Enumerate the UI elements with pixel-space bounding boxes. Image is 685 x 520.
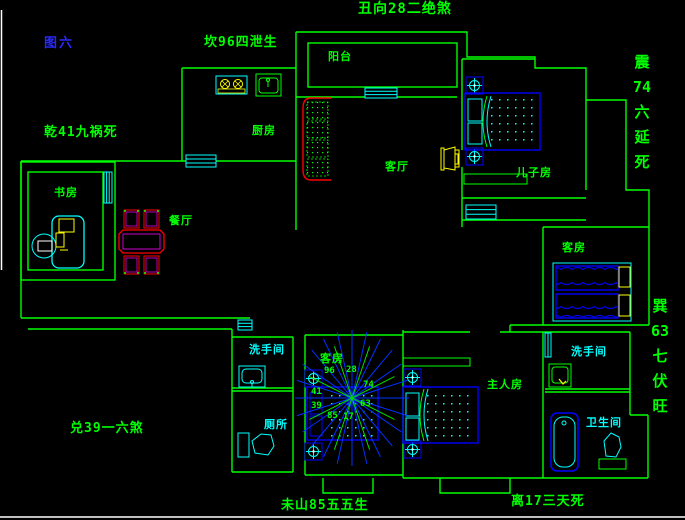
window-master-bath: [545, 333, 551, 357]
room-label-kitchen: 厨房: [252, 125, 276, 136]
kitchen-sink: [256, 74, 281, 96]
beds-guest-room: [553, 263, 631, 321]
annotation-left: 乾41九祸死: [44, 126, 118, 139]
room-label-master-room: 主人房: [487, 379, 523, 390]
compass-number-41: 41: [311, 388, 322, 397]
compass-number-63: 63: [360, 400, 371, 409]
room-label-stair-room: 客房: [320, 353, 344, 364]
room-label-bathroom: 卫生间: [586, 417, 622, 428]
annotation-char: 六: [634, 105, 649, 120]
annotation-char: 伏: [652, 374, 667, 389]
annotation-char: 延: [634, 130, 649, 145]
room-label-sons-room: 儿子房: [516, 167, 552, 178]
annotation-bottom-center: 未山85五五生: [281, 499, 369, 512]
figure-label: 图六: [44, 37, 74, 50]
annotation-char: 旺: [652, 399, 667, 414]
annotation-bottom-right: 离17三天死: [511, 495, 585, 508]
window-corridor: [238, 320, 252, 330]
annotation-right-upper: 震 74 六 延 死: [630, 55, 654, 170]
tv: [441, 147, 458, 170]
shelf-master-room: [403, 358, 470, 366]
dining-chairs: [124, 210, 159, 274]
room-label-toilet: 厕所: [264, 419, 288, 430]
compass-number-17: 17: [343, 413, 354, 422]
annotation-top-left: 坎96四泄生: [204, 36, 278, 49]
annotation-char: 死: [634, 155, 649, 170]
annotation-char: 63: [651, 324, 669, 339]
bathroom-toilet: [599, 433, 626, 469]
washroom1-sink: [239, 366, 265, 387]
room-label-study: 书房: [54, 187, 78, 198]
annotation-bottom-left: 兑39一六煞: [70, 422, 144, 435]
window-sons-room: [466, 205, 496, 219]
bathtub: [551, 413, 578, 471]
room-label-washroom-1: 洗手间: [249, 344, 285, 355]
room-label-guest-room: 客房: [562, 242, 586, 253]
compass-number-85: 85: [327, 412, 338, 421]
stair-compass: [295, 330, 409, 466]
annotation-right-lower: 巽 63 七 伏 旺: [648, 299, 672, 414]
compass-number-28: 28: [346, 366, 357, 375]
sofa: [303, 98, 331, 180]
room-label-dining-room: 餐厅: [169, 215, 193, 226]
floor-plan-drawing: [0, 0, 685, 520]
window-living: [365, 88, 397, 98]
bed-master-room: [403, 387, 478, 443]
annotation-char: 七: [652, 349, 667, 364]
compass-number-39: 39: [311, 402, 322, 411]
toilet-fixture: [238, 433, 274, 457]
annotation-char: 74: [633, 80, 651, 95]
compass-number-74: 74: [363, 381, 374, 390]
window-kitchen: [186, 155, 216, 167]
annotation-char: 巽: [652, 299, 667, 314]
study-desk: [32, 216, 84, 268]
room-label-balcony: 阳台: [328, 51, 352, 62]
dining-table: [119, 230, 164, 253]
annotation-char: 震: [634, 55, 649, 70]
room-label-living-room: 客厅: [385, 161, 409, 172]
floor-plan: 图六 坎96四泄生 丑向28二绝煞 乾41九祸死 兑39一六煞 未山85五五生 …: [0, 0, 685, 520]
washroom2-sink: [549, 364, 571, 387]
stove: [216, 76, 247, 94]
window-study: [104, 172, 112, 203]
room-label-washroom-2: 洗手间: [571, 346, 607, 357]
compass-number-96: 96: [324, 367, 335, 376]
bed-sons-room: [465, 93, 540, 150]
annotation-top-center: 丑向28二绝煞: [358, 2, 452, 16]
